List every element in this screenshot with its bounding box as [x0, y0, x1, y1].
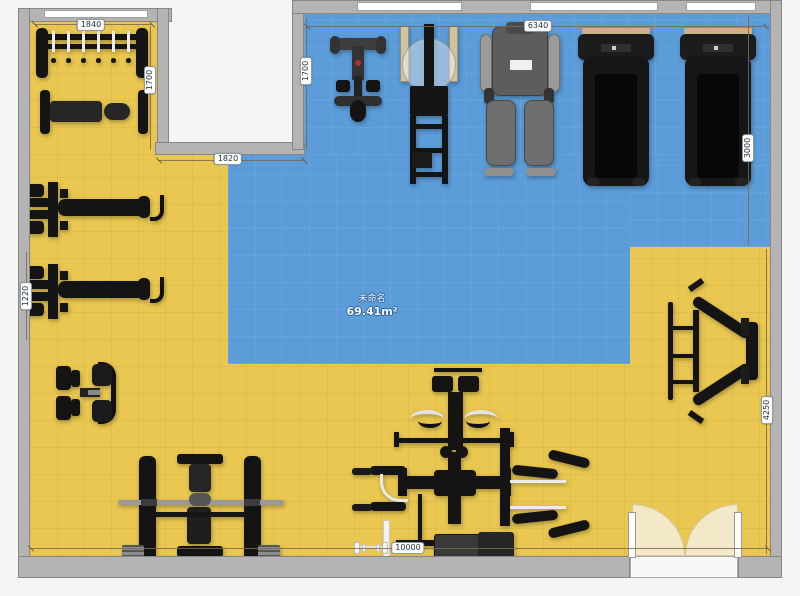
dimension-label[interactable]: 1700: [300, 57, 312, 85]
part: [370, 502, 406, 511]
part: [380, 474, 408, 502]
part: [71, 399, 80, 416]
part: [141, 499, 157, 506]
part: [350, 100, 366, 122]
part: [673, 354, 693, 358]
dumbbell-rack[interactable]: [36, 28, 148, 78]
part: [58, 199, 144, 216]
part: [398, 438, 510, 443]
part: [104, 103, 130, 120]
part: [500, 428, 510, 526]
part: [177, 454, 223, 464]
part: [394, 432, 399, 447]
dimension-label[interactable]: 1700: [144, 66, 156, 94]
part: [150, 277, 164, 303]
part: [587, 178, 599, 186]
part: [458, 376, 479, 392]
part: [418, 414, 442, 428]
part: [138, 90, 148, 134]
part: [67, 31, 70, 52]
dimension-label[interactable]: 10000: [391, 542, 424, 554]
leg-press-frame[interactable]: [662, 278, 762, 424]
part: [112, 31, 115, 52]
wall-right: [770, 0, 782, 578]
part: [58, 281, 144, 298]
pec-deck-machine[interactable]: [54, 360, 118, 428]
part: [127, 31, 130, 52]
part: [410, 86, 448, 116]
part: [82, 31, 85, 52]
part: [693, 310, 699, 392]
treadmill-2[interactable]: [680, 26, 756, 192]
part: [150, 195, 164, 221]
part: [547, 519, 590, 539]
part: [480, 34, 492, 92]
part: [741, 366, 749, 384]
part: [156, 512, 244, 517]
part: [418, 494, 422, 544]
part: [512, 510, 559, 525]
part: [376, 36, 386, 54]
part: [352, 504, 372, 511]
part: [336, 80, 350, 92]
part: [40, 90, 50, 134]
squat-rack-bench[interactable]: [118, 450, 284, 570]
part: [595, 74, 637, 178]
part: [416, 124, 442, 129]
part: [688, 278, 705, 292]
door-threshold: [630, 556, 738, 578]
part: [92, 364, 112, 386]
part: [432, 376, 453, 392]
part: [60, 221, 68, 230]
part: [741, 318, 749, 336]
floorplan-canvas: 1840 1700 1820 1700 6340 3000 4250 1220 …: [0, 0, 800, 596]
part: [735, 178, 747, 186]
part: [330, 36, 340, 54]
part: [56, 396, 71, 420]
window[interactable]: [357, 2, 462, 11]
part: [244, 499, 260, 506]
part: [56, 366, 71, 390]
part: [60, 271, 68, 280]
part: [688, 410, 705, 424]
part: [668, 302, 673, 400]
part: [355, 60, 361, 66]
part: [60, 303, 68, 312]
dimension-line: [748, 16, 749, 245]
part: [92, 400, 112, 422]
wall-alcove-right: [157, 8, 169, 148]
part: [484, 168, 514, 176]
part: [97, 31, 100, 52]
part: [612, 46, 616, 50]
part: [466, 414, 490, 428]
part: [510, 506, 566, 509]
room-area: 69.41m²: [322, 305, 422, 318]
door-leaf-right[interactable]: [734, 512, 742, 558]
part: [526, 168, 556, 176]
part: [442, 116, 448, 184]
dimension-label[interactable]: 3000: [742, 134, 754, 162]
part: [601, 44, 631, 52]
window[interactable]: [530, 2, 658, 11]
part: [71, 370, 80, 387]
part: [416, 172, 442, 177]
part: [703, 44, 733, 52]
dimension-label[interactable]: 1820: [214, 153, 242, 165]
part: [524, 100, 554, 166]
part: [510, 480, 566, 483]
part: [633, 178, 645, 186]
flat-bench[interactable]: [40, 90, 148, 134]
dimension-label[interactable]: 1840: [77, 19, 105, 31]
part: [138, 196, 150, 218]
room-name: 未命名: [322, 294, 422, 305]
window[interactable]: [44, 10, 148, 18]
part: [50, 101, 102, 122]
part: [434, 470, 476, 496]
treadmill-1[interactable]: [578, 26, 654, 192]
part: [44, 34, 140, 40]
window[interactable]: [686, 2, 756, 11]
part: [697, 74, 739, 178]
part: [689, 178, 701, 186]
wall-bottom-right: [738, 556, 782, 578]
door-leaf-left[interactable]: [628, 512, 636, 558]
spin-bike[interactable]: [330, 30, 388, 124]
part: [714, 46, 718, 50]
part: [366, 80, 380, 92]
part: [138, 278, 150, 300]
dimension-label[interactable]: 4250: [761, 396, 773, 424]
part: [486, 100, 516, 166]
part: [48, 182, 58, 237]
part: [48, 264, 58, 319]
part: [28, 210, 50, 219]
dimension-label[interactable]: 1220: [20, 282, 32, 310]
weight-bench-1[interactable]: [24, 182, 164, 238]
part: [412, 152, 432, 168]
part: [512, 465, 559, 480]
part: [673, 380, 693, 384]
part: [548, 34, 560, 92]
part: [44, 44, 140, 49]
part: [189, 464, 211, 492]
part: [510, 60, 532, 70]
part: [352, 468, 372, 475]
part: [547, 449, 590, 469]
part: [46, 54, 138, 68]
room-label[interactable]: 未命名 69.41m²: [322, 294, 422, 318]
part: [52, 31, 55, 52]
part: [673, 326, 693, 330]
wall-bottom-left: [18, 556, 630, 578]
part: [60, 189, 68, 198]
part: [28, 198, 50, 207]
part: [434, 368, 482, 372]
weight-bench-2[interactable]: [24, 264, 164, 320]
part: [189, 493, 211, 506]
smith-machine[interactable]: [398, 24, 462, 188]
shoulder-press-machine[interactable]: [478, 22, 562, 178]
dimension-label[interactable]: 6340: [524, 20, 552, 32]
